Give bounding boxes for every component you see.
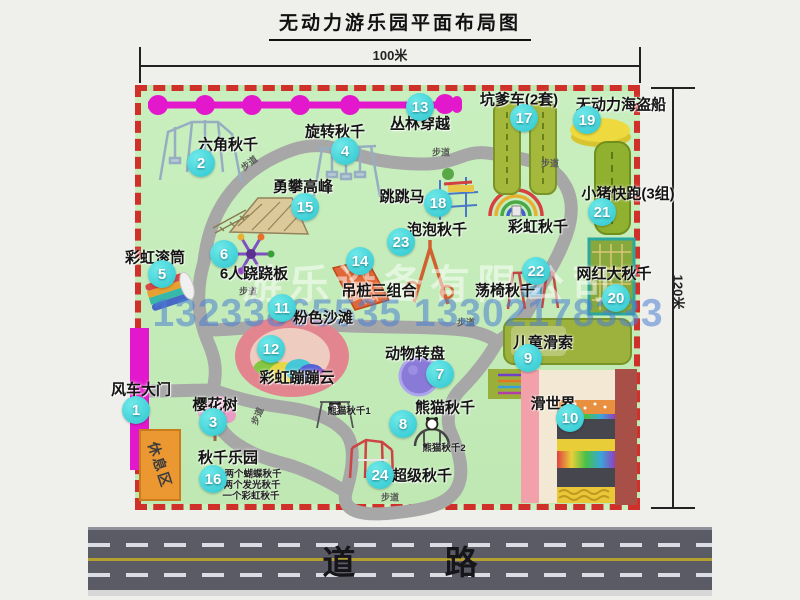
attraction-label-4: 旋转秋千 xyxy=(305,121,365,142)
attraction-badge-13: 13 xyxy=(406,93,434,121)
rest-area: 休息区 xyxy=(139,429,181,501)
attraction-badge-6: 6 xyxy=(210,240,238,268)
attraction-badge-4: 4 xyxy=(331,137,359,165)
sub-label: 熊猫秋千2 xyxy=(422,440,465,454)
trail-label: 步道 xyxy=(432,146,450,159)
attraction-badge-5: 5 xyxy=(148,260,176,288)
attraction-label-20: 网红大秋千 xyxy=(576,263,651,284)
park-plan-screenshot: 无动力游乐园平面布局图 100米 120米 休息区 xyxy=(0,0,800,600)
attraction-badge-20: 20 xyxy=(602,284,630,312)
attraction-badge-22: 22 xyxy=(522,257,550,285)
attraction-badge-19: 19 xyxy=(573,106,601,134)
attraction-badge-2: 2 xyxy=(187,149,215,177)
attraction-badge-9: 9 xyxy=(514,344,542,372)
attraction-label-14: 吊桩三组合 xyxy=(341,280,416,301)
rest-area-label: 休息区 xyxy=(143,439,177,491)
attraction-badge-24: 24 xyxy=(366,461,394,489)
attraction-badge-12: 12 xyxy=(257,335,285,363)
attraction-badge-1: 1 xyxy=(122,396,150,424)
attraction-label-18: 跳跳马 xyxy=(379,186,424,207)
attraction-label-11: 粉色沙滩 xyxy=(293,307,353,328)
attraction-label-24: 超级秋千 xyxy=(392,465,452,486)
attraction-badge-23: 23 xyxy=(387,228,415,256)
attraction-badge-18: 18 xyxy=(424,189,452,217)
attraction-label-8: 熊猫秋千 xyxy=(415,397,475,418)
attraction-badge-14: 14 xyxy=(346,247,374,275)
trail-label: 步道 xyxy=(381,491,399,504)
attraction-badge-11: 11 xyxy=(268,294,296,322)
attraction-badge-16: 16 xyxy=(199,465,227,493)
trail-label: 步道 xyxy=(541,157,559,170)
attraction-badge-8: 8 xyxy=(389,410,417,438)
attraction-label-12: 彩虹蹦蹦云 xyxy=(259,367,334,388)
attraction-badge-3: 3 xyxy=(199,408,227,436)
attraction-label-22: 荡椅秋千 xyxy=(475,280,535,301)
attraction-badge-15: 15 xyxy=(291,193,319,221)
slide-world-icon xyxy=(521,369,637,505)
attraction-badge-17: 17 xyxy=(510,104,538,132)
attraction-label-23: 泡泡秋千 xyxy=(407,219,467,240)
attraction-badge-10: 10 xyxy=(556,404,584,432)
sub-label: 熊猫秋千1 xyxy=(327,403,370,417)
attraction-label-16: 秋千乐园 xyxy=(198,447,258,468)
attraction-badge-21: 21 xyxy=(588,198,616,226)
attraction-label-彩虹秋千: 彩虹秋千 xyxy=(508,216,568,237)
sub-label: 一个彩虹秋千 xyxy=(222,488,279,502)
attraction-badge-7: 7 xyxy=(426,360,454,388)
rainbow-swing-icon xyxy=(490,190,542,216)
